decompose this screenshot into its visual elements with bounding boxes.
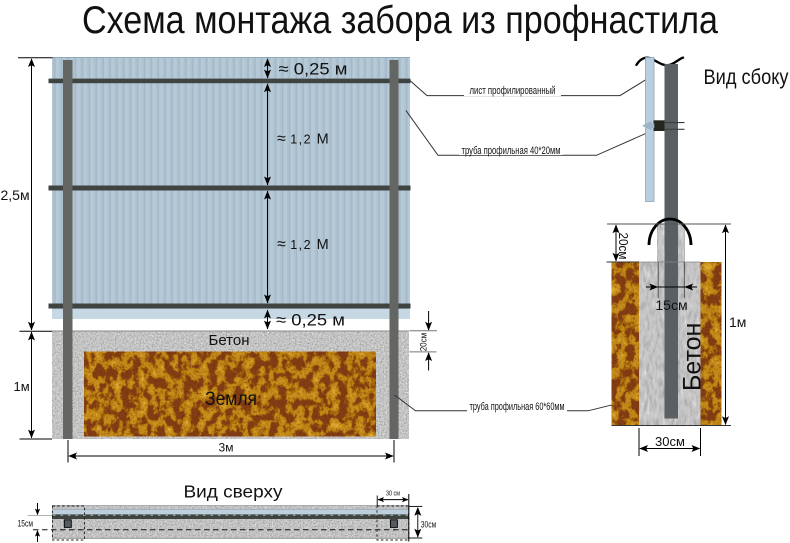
svg-text:30 см: 30 см xyxy=(386,491,400,498)
svg-text:Схема монтажа забора из профна: Схема монтажа забора из профнастила xyxy=(82,0,718,42)
svg-text:30см: 30см xyxy=(421,520,437,531)
svg-text:≈ 1,2 М: ≈ 1,2 М xyxy=(277,236,329,253)
svg-text:20см: 20см xyxy=(419,333,430,352)
svg-text:3м: 3м xyxy=(219,441,234,455)
svg-text:Вид сбоку: Вид сбоку xyxy=(704,66,789,89)
svg-text:труба профильная 40*20мм: труба профильная 40*20мм xyxy=(462,145,561,157)
svg-text:≈ 0,25 м: ≈ 0,25 м xyxy=(276,310,345,329)
svg-text:Бетон: Бетон xyxy=(208,332,249,349)
svg-text:труба профильная 60*60мм: труба профильная 60*60мм xyxy=(470,401,565,413)
svg-text:Земля: Земля xyxy=(205,389,257,410)
svg-text:лист профилированный: лист профилированный xyxy=(470,85,556,97)
svg-text:1м: 1м xyxy=(14,379,30,394)
svg-text:≈ 1,2 М: ≈ 1,2 М xyxy=(277,131,329,148)
svg-text:Бетон: Бетон xyxy=(679,323,707,391)
svg-text:1м: 1м xyxy=(729,314,746,330)
svg-text:30см: 30см xyxy=(655,434,685,449)
svg-text:20см: 20см xyxy=(616,233,631,260)
svg-text:15см: 15см xyxy=(18,519,34,529)
svg-text:15см: 15см xyxy=(655,297,687,313)
svg-text:≈ 0,25 м: ≈ 0,25 м xyxy=(279,59,348,78)
svg-text:2,5м: 2,5м xyxy=(1,187,30,203)
svg-text:Вид сверху: Вид сверху xyxy=(184,482,283,502)
